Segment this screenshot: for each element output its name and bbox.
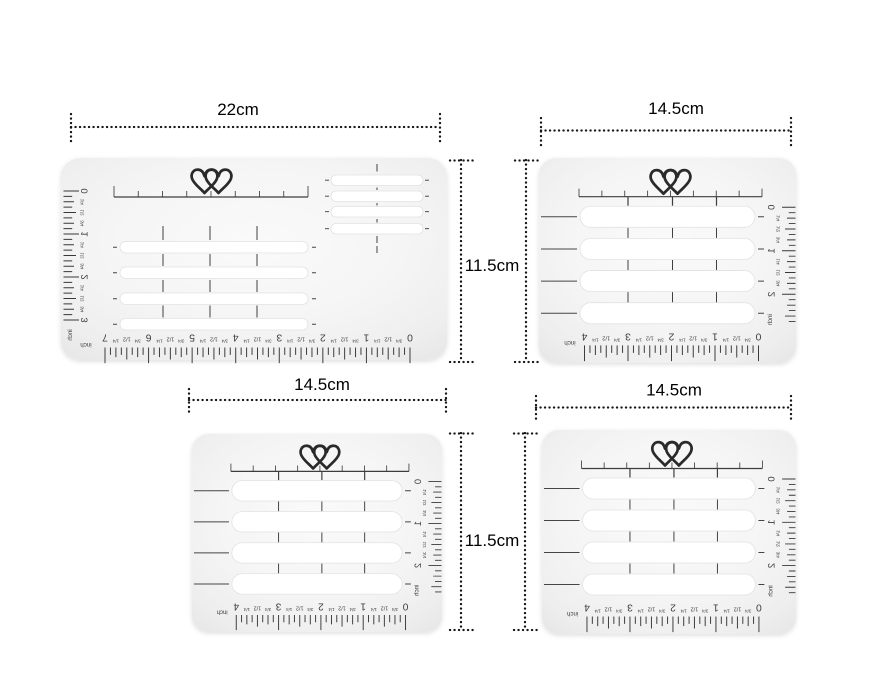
svg-text:1/2: 1/2 <box>691 605 699 611</box>
svg-text:14.5cm: 14.5cm <box>294 375 350 394</box>
svg-text:3/4: 3/4 <box>80 306 85 313</box>
svg-text:1/2: 1/2 <box>167 336 175 342</box>
svg-text:0: 0 <box>80 188 91 193</box>
svg-text:1: 1 <box>360 600 366 611</box>
svg-text:1/4: 1/4 <box>370 607 377 612</box>
svg-text:3/4: 3/4 <box>659 608 666 613</box>
svg-text:3/4: 3/4 <box>657 337 664 342</box>
svg-text:14.5cm: 14.5cm <box>648 99 704 118</box>
svg-text:3/4: 3/4 <box>776 237 781 244</box>
svg-text:0: 0 <box>413 479 423 484</box>
svg-text:22cm: 22cm <box>217 100 259 119</box>
svg-text:1: 1 <box>767 520 778 525</box>
svg-text:1/2: 1/2 <box>210 336 218 342</box>
svg-text:1/2: 1/2 <box>733 334 741 340</box>
svg-text:0: 0 <box>402 600 408 611</box>
svg-text:1/4: 1/4 <box>112 339 119 344</box>
svg-text:2: 2 <box>767 563 778 568</box>
svg-text:1: 1 <box>713 602 719 613</box>
svg-text:7: 7 <box>102 332 108 343</box>
svg-text:3/4: 3/4 <box>80 220 85 227</box>
svg-text:0: 0 <box>767 205 778 210</box>
svg-text:inch: inch <box>566 610 578 617</box>
svg-text:0: 0 <box>407 332 413 343</box>
svg-text:11.5cm: 11.5cm <box>465 531 520 550</box>
svg-text:3: 3 <box>276 332 282 343</box>
svg-text:1: 1 <box>413 521 423 526</box>
svg-text:1/4: 1/4 <box>422 489 427 496</box>
svg-text:1/2: 1/2 <box>80 209 85 216</box>
svg-text:2: 2 <box>318 600 324 611</box>
svg-text:14.5cm: 14.5cm <box>646 381 702 400</box>
svg-text:1/4: 1/4 <box>286 607 293 612</box>
svg-text:1/4: 1/4 <box>594 608 601 613</box>
svg-text:inch: inch <box>767 585 774 597</box>
svg-text:0: 0 <box>756 602 762 613</box>
svg-text:1/2: 1/2 <box>341 336 349 342</box>
svg-text:3/4: 3/4 <box>776 508 781 515</box>
svg-text:1/2: 1/2 <box>254 336 262 342</box>
svg-text:1/4: 1/4 <box>243 339 250 344</box>
svg-text:1: 1 <box>80 231 91 236</box>
svg-text:1/2: 1/2 <box>422 500 427 507</box>
svg-text:3/4: 3/4 <box>265 339 272 344</box>
svg-text:1/2: 1/2 <box>776 226 781 233</box>
svg-text:1/4: 1/4 <box>722 337 729 342</box>
svg-text:inch: inch <box>67 329 74 341</box>
svg-text:1/2: 1/2 <box>338 604 346 610</box>
svg-text:1/4: 1/4 <box>776 259 781 266</box>
svg-text:1/2: 1/2 <box>648 605 656 611</box>
svg-text:1/4: 1/4 <box>422 531 427 538</box>
svg-text:1: 1 <box>767 248 778 253</box>
svg-text:3/4: 3/4 <box>221 339 228 344</box>
svg-text:1/2: 1/2 <box>297 336 305 342</box>
svg-text:1/4: 1/4 <box>374 339 381 344</box>
svg-text:3/4: 3/4 <box>352 339 359 344</box>
svg-text:3/4: 3/4 <box>80 263 85 270</box>
svg-text:1/2: 1/2 <box>602 334 610 340</box>
svg-text:1/2: 1/2 <box>689 334 697 340</box>
svg-text:4: 4 <box>233 332 239 343</box>
svg-text:3/4: 3/4 <box>349 607 356 612</box>
svg-text:4: 4 <box>233 600 239 611</box>
svg-text:1/2: 1/2 <box>605 605 613 611</box>
svg-text:1/2: 1/2 <box>381 604 389 610</box>
svg-text:1/4: 1/4 <box>156 339 163 344</box>
svg-text:3/4: 3/4 <box>702 608 709 613</box>
svg-text:3/4: 3/4 <box>395 339 402 344</box>
svg-text:1/2: 1/2 <box>734 605 742 611</box>
svg-text:inch: inch <box>564 339 576 346</box>
svg-text:1/4: 1/4 <box>776 487 781 494</box>
svg-text:inch: inch <box>80 341 92 348</box>
svg-text:1: 1 <box>712 330 718 341</box>
svg-text:1/4: 1/4 <box>592 337 599 342</box>
svg-text:0: 0 <box>755 330 761 341</box>
svg-text:inch: inch <box>767 314 774 326</box>
svg-text:1/4: 1/4 <box>243 607 250 612</box>
svg-text:4: 4 <box>581 330 587 341</box>
svg-text:1/4: 1/4 <box>80 199 85 206</box>
svg-text:11.5cm: 11.5cm <box>465 256 520 275</box>
svg-text:6: 6 <box>145 332 151 343</box>
svg-text:3/4: 3/4 <box>744 337 751 342</box>
svg-text:1: 1 <box>363 332 369 343</box>
svg-text:1/2: 1/2 <box>254 604 262 610</box>
svg-text:1/4: 1/4 <box>199 339 206 344</box>
svg-text:1/4: 1/4 <box>776 530 781 537</box>
svg-text:3/4: 3/4 <box>308 339 315 344</box>
svg-text:1/2: 1/2 <box>123 336 131 342</box>
svg-text:2: 2 <box>320 332 326 343</box>
svg-text:1/2: 1/2 <box>384 336 392 342</box>
svg-text:1/2: 1/2 <box>776 541 781 548</box>
svg-text:3/4: 3/4 <box>613 337 620 342</box>
svg-text:inch: inch <box>415 585 421 596</box>
svg-text:3/4: 3/4 <box>422 510 427 517</box>
svg-text:inch: inch <box>217 609 228 615</box>
svg-text:3/4: 3/4 <box>307 607 314 612</box>
svg-text:1/2: 1/2 <box>296 604 304 610</box>
svg-text:5: 5 <box>189 332 195 343</box>
svg-text:3: 3 <box>625 330 631 341</box>
svg-text:3/4: 3/4 <box>391 607 398 612</box>
svg-text:1/4: 1/4 <box>80 242 85 249</box>
svg-text:3/4: 3/4 <box>264 607 271 612</box>
svg-text:3/4: 3/4 <box>422 552 427 559</box>
svg-text:1/2: 1/2 <box>80 252 85 259</box>
svg-text:1/4: 1/4 <box>637 608 644 613</box>
svg-text:0: 0 <box>767 476 778 481</box>
svg-text:1/4: 1/4 <box>723 608 730 613</box>
svg-text:1/4: 1/4 <box>328 607 335 612</box>
svg-text:3/4: 3/4 <box>178 339 185 344</box>
svg-text:3/4: 3/4 <box>700 337 707 342</box>
svg-text:2: 2 <box>767 292 778 297</box>
svg-text:3/4: 3/4 <box>616 608 623 613</box>
svg-text:1/2: 1/2 <box>422 542 427 549</box>
svg-text:1/4: 1/4 <box>635 337 642 342</box>
svg-text:1/2: 1/2 <box>646 334 654 340</box>
svg-text:1/2: 1/2 <box>776 269 781 276</box>
svg-text:1/4: 1/4 <box>776 215 781 222</box>
svg-text:1/4: 1/4 <box>679 337 686 342</box>
svg-text:2: 2 <box>668 330 674 341</box>
svg-text:1/4: 1/4 <box>287 339 294 344</box>
svg-text:1/4: 1/4 <box>330 339 337 344</box>
svg-text:2: 2 <box>413 563 423 568</box>
svg-text:1/2: 1/2 <box>80 295 85 302</box>
svg-text:1/4: 1/4 <box>80 285 85 292</box>
svg-text:4: 4 <box>584 602 590 613</box>
svg-text:3/4: 3/4 <box>134 339 141 344</box>
svg-text:3: 3 <box>627 602 633 613</box>
svg-text:3/4: 3/4 <box>776 280 781 287</box>
svg-text:3/4: 3/4 <box>776 552 781 559</box>
svg-text:3: 3 <box>80 317 91 322</box>
svg-text:1/4: 1/4 <box>680 608 687 613</box>
svg-text:2: 2 <box>670 602 676 613</box>
svg-text:2: 2 <box>80 274 91 279</box>
svg-text:3/4: 3/4 <box>745 608 752 613</box>
svg-text:3: 3 <box>275 600 281 611</box>
svg-text:1/2: 1/2 <box>776 498 781 505</box>
